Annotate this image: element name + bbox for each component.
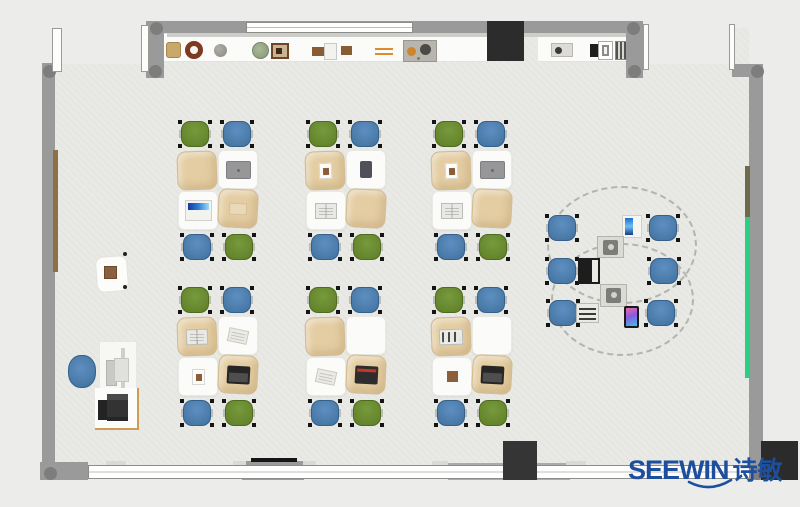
student-chair-green [432,119,466,149]
student-desk [346,150,386,189]
student-chair-blue [647,256,681,286]
shelf-item-basket [166,42,181,58]
rail-brown-right [745,166,750,218]
floor-dot-1 [123,252,127,256]
wall-joint-4 [628,65,641,78]
desk-item-book [186,328,209,345]
student-chair-green [306,285,340,315]
desk-item-news [315,368,337,386]
table-device-laptopb [578,258,600,284]
teacher-office-chair [65,352,99,391]
student-desk [306,357,346,396]
student-chair-green [476,232,510,262]
brand-logo-text-cn: 诗敏 [733,457,783,485]
shelf-item-case [324,43,337,60]
brand-logo: SEEWIN诗敏 [628,451,800,493]
wall-joint-5 [751,65,764,78]
student-chair-green [222,398,256,428]
student-desk [430,150,471,190]
student-chair-blue [308,398,342,428]
desk-item-laptopred [354,365,378,384]
student-chair-blue [545,256,579,286]
student-chair-green [350,232,384,262]
door-jamb-1 [52,28,62,72]
desk-item-photo [192,369,205,385]
shelf-item-ball [214,44,227,57]
student-desk [218,316,258,355]
student-chair-blue [220,119,254,149]
wall-joint-1 [150,22,163,35]
shelf-item-rails [375,48,393,55]
student-chair-green [178,285,212,315]
student-desk [432,357,472,396]
student-desk [432,191,472,230]
desk-item-photo [444,162,458,178]
shelf-item-plant [252,42,269,59]
student-chair-blue [545,213,579,243]
student-chair-green [306,119,340,149]
wall-joint-2 [627,22,640,35]
table-device-gdev [600,284,627,307]
student-desk [345,188,387,229]
door-recess-top-left [55,20,146,64]
student-chair-blue [348,119,382,149]
table-device-laptopw [576,303,599,323]
desk-item-screenblue [185,200,212,221]
student-chair-blue [180,398,214,428]
student-chair-blue [644,298,678,328]
desk-item-pencil [229,202,248,215]
student-desk [178,357,218,396]
student-desk [472,316,512,355]
desk-item-tabletgray [480,161,505,179]
student-chair-blue [646,213,680,243]
desk-item-news [227,327,249,345]
student-chair-blue [220,285,254,315]
student-desk [345,354,387,395]
wall-right [749,64,763,480]
student-chair-green [222,232,256,262]
tv-panel [487,21,524,61]
desk-item-book [315,203,337,219]
student-chair-blue [180,232,214,262]
desk-item-tabletdark [360,161,372,178]
student-chair-green [178,119,212,149]
table-device-screenv [622,215,642,238]
printer [98,394,128,422]
shelf-item-tray [403,40,437,62]
door-jamb-2 [141,25,149,72]
pier-top-line [251,458,297,462]
student-desk [218,150,258,189]
student-chair-blue [348,285,382,315]
student-chair-blue [474,285,508,315]
door-recess-top-right [643,16,733,64]
desk-item-laptopwhite [439,328,464,345]
student-desk [306,191,346,230]
student-chair-blue [434,398,468,428]
student-chair-green [476,398,510,428]
desk-item-laptopdark [226,365,250,384]
rail-brown-left [53,150,58,272]
student-chair-blue [474,119,508,149]
window-top [246,22,413,33]
student-chair-green [432,285,466,315]
student-desk [304,316,345,356]
student-chair-blue [308,232,342,262]
classroom-floorplan: SEEWIN诗敏 [0,0,800,507]
shelf-item-wreath [185,41,203,59]
student-desk [217,354,259,395]
wall-joint-3 [149,65,162,78]
student-desk [178,191,218,230]
table-device-phone [624,306,639,328]
shelf-item-box [341,46,352,55]
student-chair-blue [546,298,580,328]
wall-inner-edge [167,33,627,37]
logo-swoosh-icon [686,479,734,492]
student-desk [471,188,513,229]
student-desk [430,316,471,356]
side-table-item [104,266,117,279]
rail-green-right [745,217,750,378]
student-desk [472,150,512,189]
monitor [114,358,129,382]
door-jamb-3 [643,24,649,70]
student-desk [471,354,513,395]
shelf-item-copier [590,41,613,59]
shelf-item-frame [271,43,289,59]
student-desk [346,316,386,355]
desk-item-book [441,203,463,219]
student-chair-blue [434,232,468,262]
door-jamb-4 [729,24,735,70]
student-desk [176,150,217,190]
cabinet-bottom [503,441,537,480]
shelf-item-knob [551,43,573,57]
student-desk [176,316,217,356]
desk-item-tabletgray [226,161,251,179]
student-chair-green [350,398,384,428]
desk-item-brown [447,371,458,382]
desk-item-laptopdark [480,365,504,384]
table-device-gdev [597,236,624,258]
student-desk [304,150,345,190]
wall-joint-7 [44,467,57,480]
student-desk [217,188,259,229]
floor-dot-2 [123,285,127,289]
desk-item-photo [318,162,332,178]
